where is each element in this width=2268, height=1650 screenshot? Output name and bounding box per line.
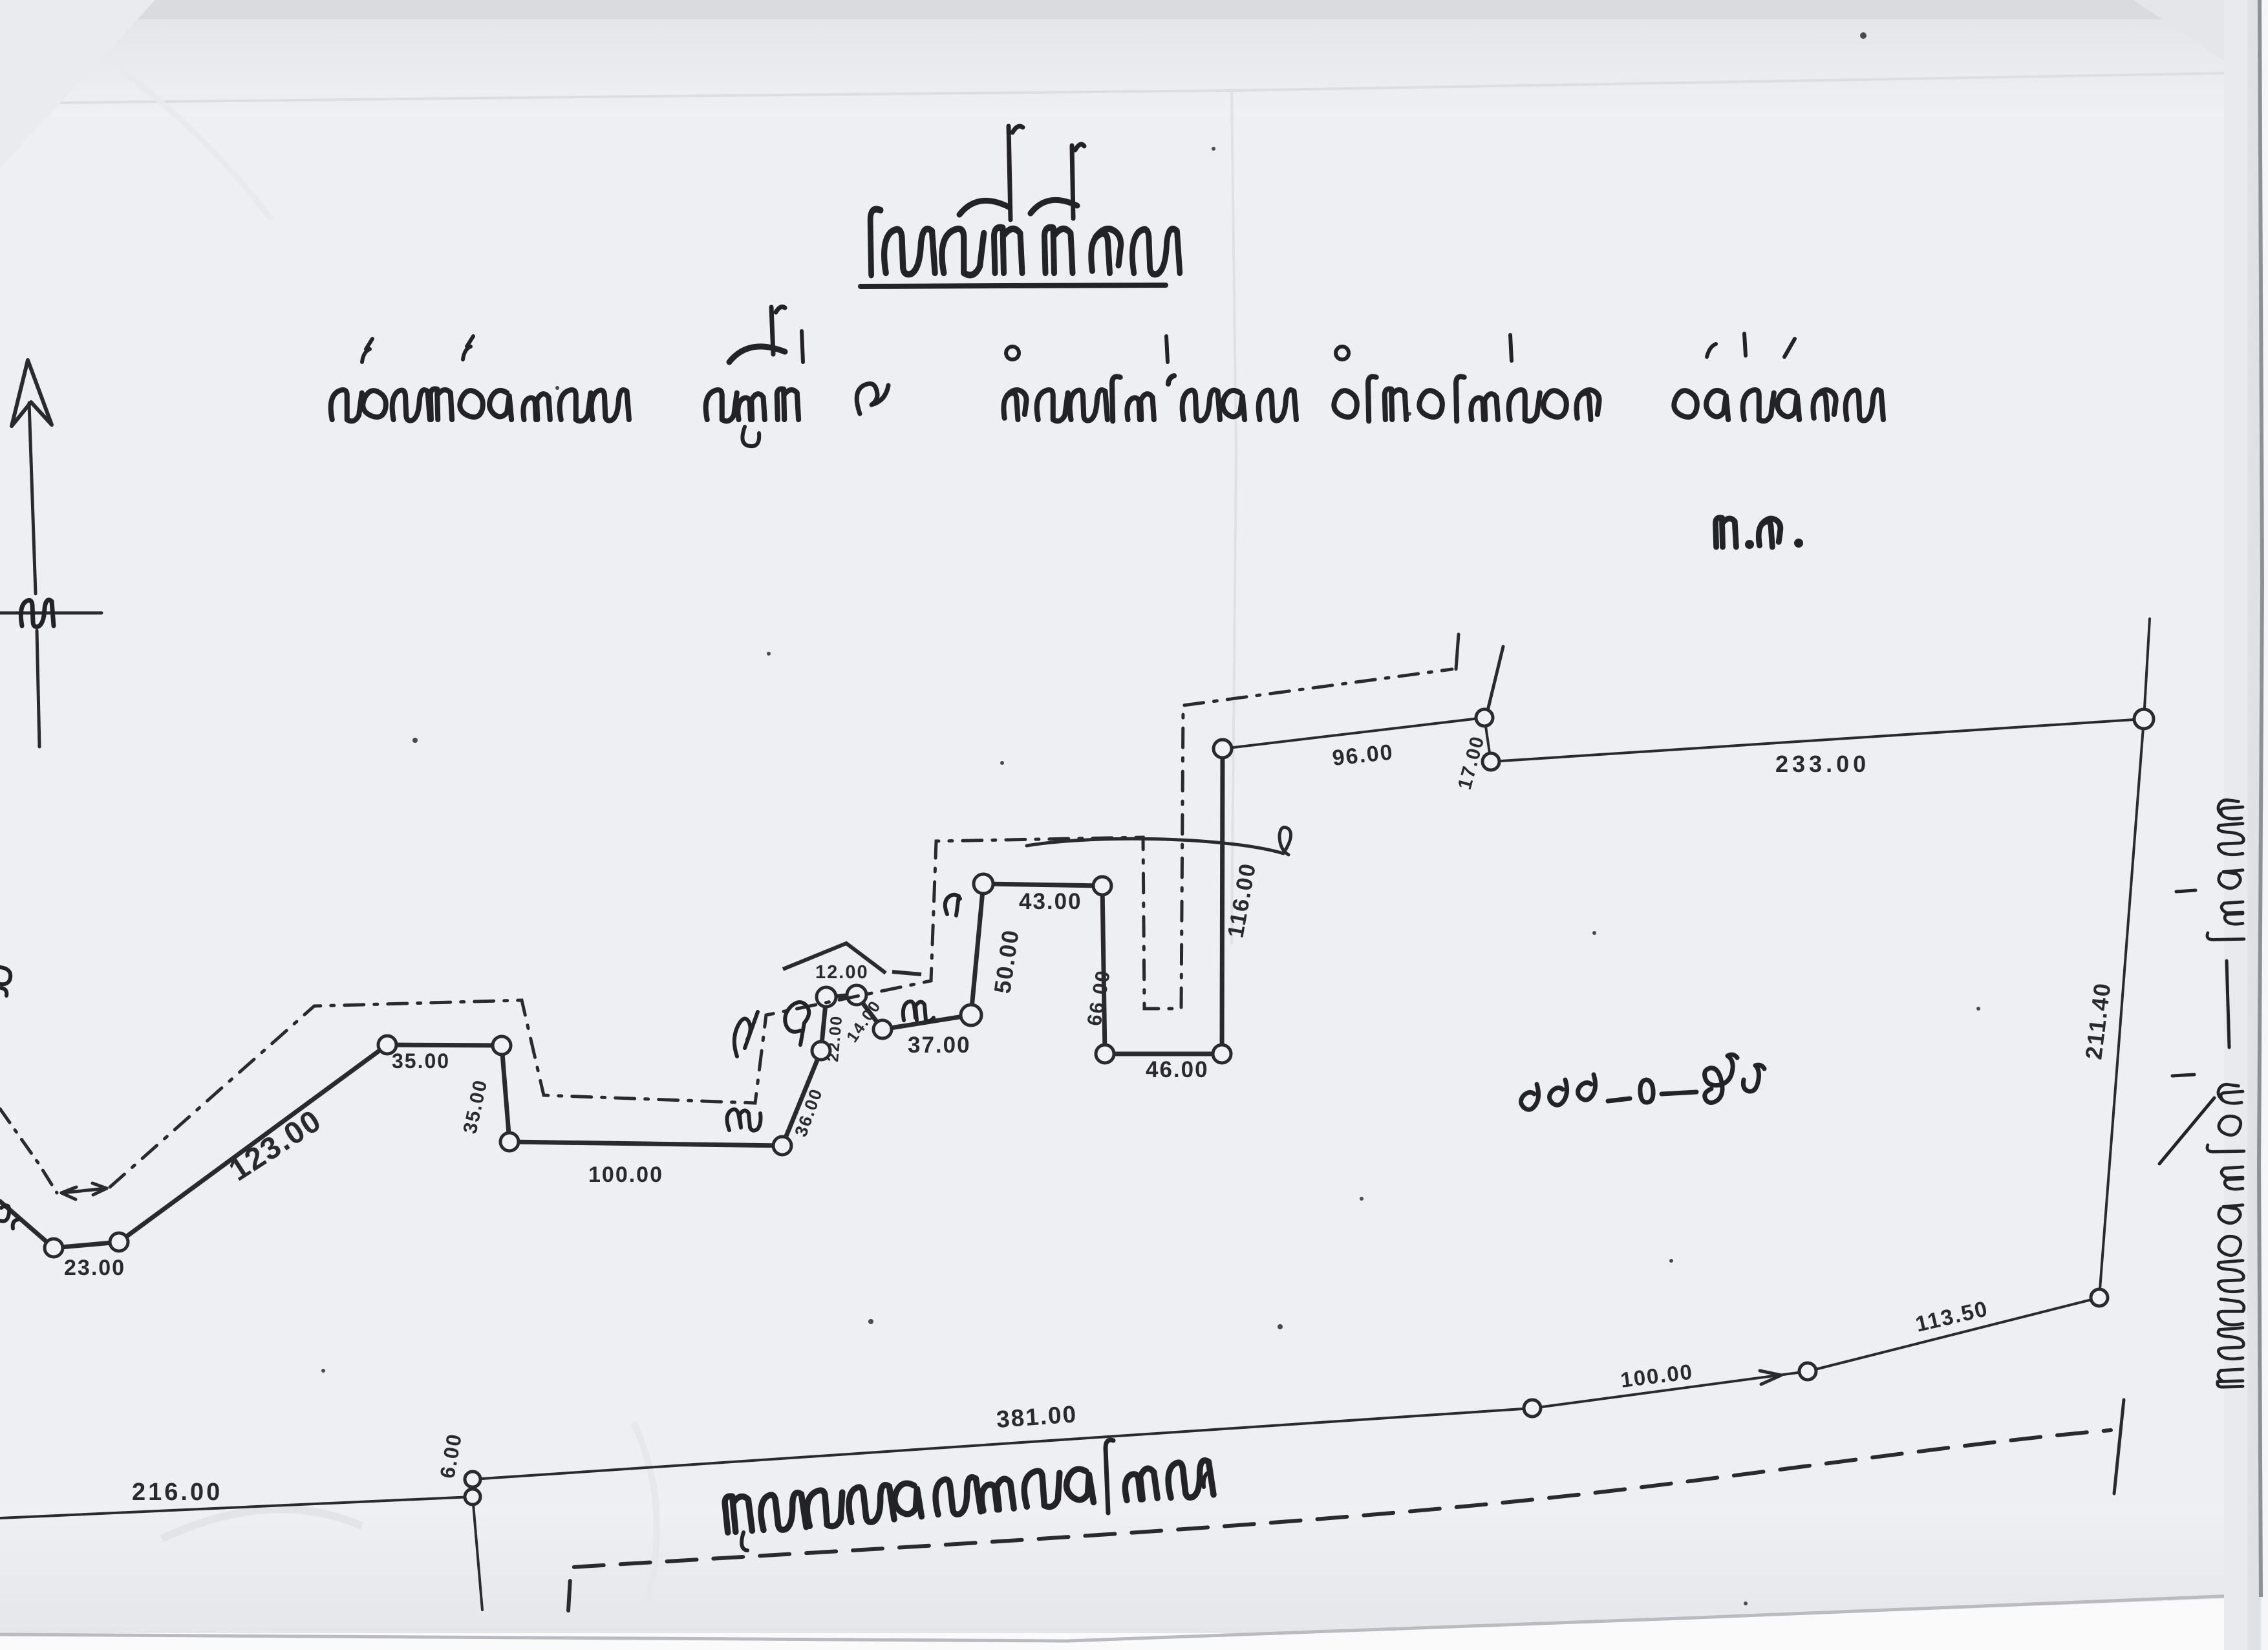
svg-text:216.00: 216.00 [132, 1479, 222, 1506]
svg-text:233.00: 233.00 [1775, 751, 1870, 777]
svg-text:35.00: 35.00 [392, 1049, 450, 1073]
svg-text:381.00: 381.00 [996, 1400, 1078, 1433]
svg-text:23.00: 23.00 [64, 1256, 125, 1280]
svg-text:43.00: 43.00 [1019, 889, 1082, 914]
svg-text:37.00: 37.00 [908, 1033, 971, 1058]
svg-text:46.00: 46.00 [1146, 1057, 1209, 1082]
svg-text:100.00: 100.00 [588, 1162, 663, 1187]
svg-text:12.00: 12.00 [815, 962, 869, 983]
